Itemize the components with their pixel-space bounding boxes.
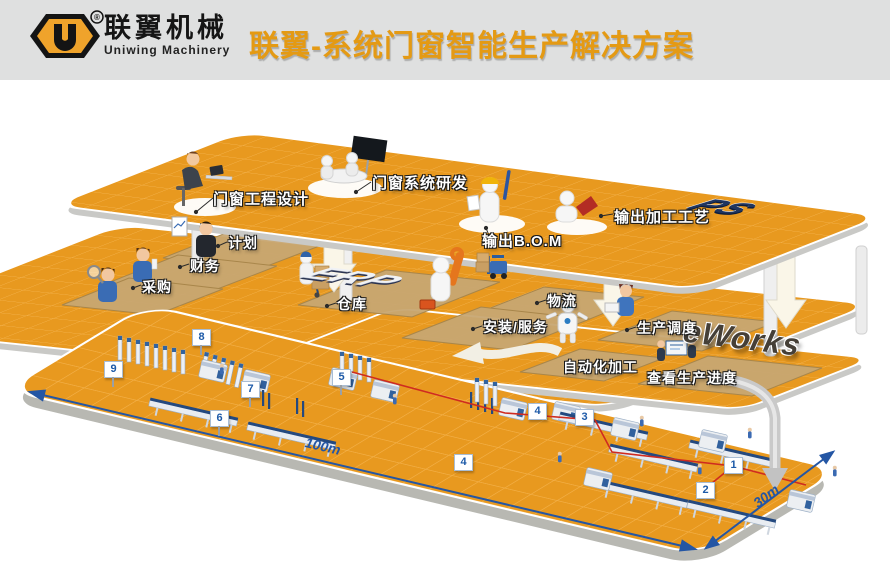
station-label-window-rd: 门窗系统研发: [372, 172, 468, 193]
floor-marker-9: 9: [104, 361, 123, 378]
station-label-plan: 计划: [228, 233, 258, 253]
station-label-window-design: 门窗工程设计: [213, 188, 309, 209]
floor-marker-1: 1: [724, 457, 743, 474]
station-label-view-progress: 查看生产进度: [647, 368, 737, 388]
floor-marker-3: 3: [575, 409, 594, 426]
station-label-install-service: 安装/服务: [483, 317, 548, 337]
floor-marker-5: 5: [332, 369, 351, 386]
floor-marker-2: 2: [696, 482, 715, 499]
floor-marker-7: 7: [241, 381, 260, 398]
floor-marker-8: 8: [192, 329, 211, 346]
station-label-warehouse: 仓库: [337, 294, 367, 314]
station-label-output-bom: 输出B.O.M: [482, 230, 562, 251]
station-label-purchasing: 采购: [142, 277, 172, 297]
scene-graphic: [0, 0, 890, 567]
station-label-auto-machining: 自动化加工: [563, 357, 638, 377]
station-label-output-process: 输出加工工艺: [614, 206, 710, 227]
floor-marker-4a: 4: [528, 403, 547, 420]
poster: ® 联翼机械 Uniwing Machinery 联翼-系统门窗智能生产解决方案: [0, 0, 890, 567]
floor-marker-6: 6: [210, 410, 229, 427]
station-label-logistics: 物流: [547, 291, 577, 311]
floor-marker-4b: 4: [454, 454, 473, 471]
station-label-scheduling: 生产调度: [637, 318, 697, 338]
station-label-finance: 财务: [190, 256, 220, 276]
